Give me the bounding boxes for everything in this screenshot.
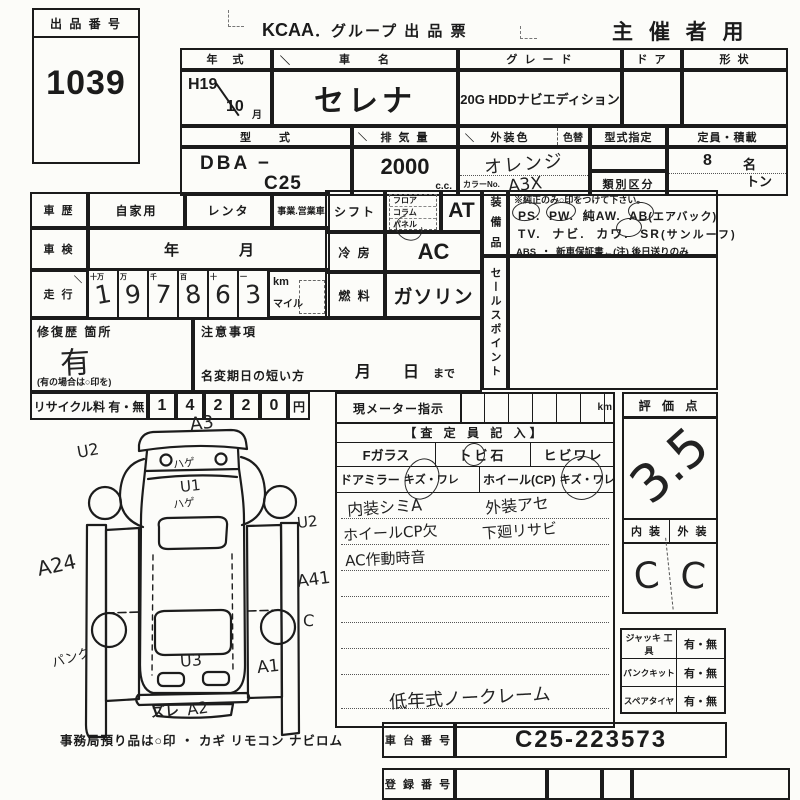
note-line <box>341 622 609 623</box>
registration-cell <box>602 768 632 800</box>
equipment-label: 装 備 品 <box>487 196 503 250</box>
repair-history-cell: 修復歴 箇所 有 (有の場合は○印を) <box>30 318 193 392</box>
model-cell: DBA − C25 <box>180 147 352 196</box>
fuel-label: 燃 料 <box>325 272 385 318</box>
color-no-label: カラーNo. <box>463 179 500 190</box>
door-mirror-label: ドアミラー <box>340 471 400 488</box>
chassis-number-label: 車 台 番 号 <box>382 722 455 758</box>
history-private: 自家用 <box>88 192 185 228</box>
meter-row: 現メーター指示 km <box>337 394 613 424</box>
meter-digit-box <box>484 394 509 422</box>
registration-cell <box>455 768 547 800</box>
registration-mark-right <box>520 26 537 39</box>
exterior-grade: C <box>668 538 719 613</box>
sales-point-label-cell: セールスポイント <box>482 256 508 390</box>
shift-options-cell: フロア コラム パネル <box>385 190 441 232</box>
shape-header: 形 状 <box>682 48 788 70</box>
color-header: ＼ 外装色 色替 <box>458 126 590 147</box>
damage-note-u2-top: U2 <box>76 439 101 462</box>
office-deposit-note: 事務局預り品は○印 ・ カギ リモコン ナビロム <box>60 730 343 749</box>
door-cell <box>622 70 682 126</box>
damage-note-zure: ズレ <box>150 700 179 722</box>
sales-point-box <box>508 256 718 390</box>
capacity-header: 定員・積載 <box>667 126 788 147</box>
transfer-deadline-date: 月 日 <box>355 358 419 382</box>
load-unit: トン <box>746 171 772 190</box>
history-business: 事業.営業車 <box>272 192 330 228</box>
year-value: H19 <box>188 76 217 94</box>
inspection-value: 年 月 <box>88 228 330 270</box>
jack-tools-label: ジャッキ 工具 <box>622 630 677 658</box>
digit-value: 8 <box>176 269 210 318</box>
shift-label: シフト <box>325 190 385 232</box>
tool-row: ジャッキ 工具 有・無 <box>622 630 724 659</box>
type-designation-header: 型式指定 <box>590 126 667 147</box>
wheel-label: ホイール(CP) <box>483 471 556 488</box>
damage-note-u2-right: U2 <box>296 512 318 532</box>
sheet-title: KCAA．グループ 出 品 票 <box>262 20 468 41</box>
meter-digit-box <box>532 394 557 422</box>
inspector-bottom-note: 低年式ノークレーム <box>388 680 551 714</box>
tools-table: ジャッキ 工具 有・無 パンクキット 有・無 スペアタイヤ 有・無 <box>620 628 726 714</box>
equipment-note: ※純正のみ○印をつけて下さい。 <box>510 192 716 206</box>
inspector-note-ac: AC作動時音 <box>345 546 426 571</box>
odometer-unit-cell: km マイル <box>268 270 330 318</box>
year-cell: H19 10 月 <box>180 70 272 126</box>
shift-option-floor: フロア <box>390 195 436 207</box>
damage-note-a3: A3 <box>189 412 215 435</box>
spare-tire-label: スペアタイヤ <box>622 687 677 714</box>
diagonal-mark: ＼ <box>465 131 474 144</box>
registration-mark-left <box>228 10 244 27</box>
odometer-digit-cell: 一 3 <box>238 270 268 318</box>
equipment-label-cell: 装 備 品 <box>482 190 508 256</box>
odometer-digit-cell: 十万 1 <box>88 270 118 318</box>
inspection-label: 車 検 <box>30 228 88 270</box>
registration-number-label: 登 録 番 号 <box>382 768 455 800</box>
door-header: ド ア <box>622 48 682 70</box>
history-rental: レンタ <box>185 192 272 228</box>
meter-digit-box <box>508 394 533 422</box>
inspector-note-wheel: ホイールCP欠 <box>343 520 439 546</box>
registration-cell <box>632 768 790 800</box>
organizer-label: 主 催 者 用 <box>612 16 749 46</box>
name-header-label: 車 名 <box>274 50 456 68</box>
digit-value: 6 <box>208 270 238 317</box>
puncture-kit-value: 有・無 <box>677 659 724 686</box>
meter-label: 現メーター指示 <box>337 394 462 422</box>
model-header: 型 式 <box>180 126 352 147</box>
note-line <box>341 570 609 571</box>
chassis-number-value: C25-223573 <box>455 722 727 758</box>
odometer-label-cell: ＼ 走 行 <box>30 270 88 318</box>
note-line <box>341 648 609 649</box>
odometer-digit-cell: 百 8 <box>178 270 208 318</box>
note-line <box>341 596 609 597</box>
equip-sr-paren: (サンルーフ) <box>661 229 737 241</box>
jack-tools-value: 有・無 <box>677 630 724 658</box>
equip-aw: 純AW. <box>583 209 621 223</box>
meter-digit-box <box>556 394 581 422</box>
note-line <box>341 544 609 545</box>
inspector-note-underbody: 下廻リサビ <box>481 517 557 543</box>
sales-point-label: セールスポイント <box>487 267 503 379</box>
damage-note-hage-mid: ハゲ <box>172 494 196 513</box>
diagonal-mark: ＼ <box>280 52 290 67</box>
damage-note-a2: A2 <box>186 698 210 720</box>
km-unit: km <box>273 276 289 288</box>
color-change-label: 色替 <box>557 128 588 145</box>
odometer-digit-cell: 万 9 <box>118 270 148 318</box>
inspector-note-exterior: 外装アセ <box>484 489 550 518</box>
type-designation-cell <box>590 147 667 171</box>
capacity-value: 8 <box>703 152 712 170</box>
puncture-kit-label: パンクキット <box>622 659 677 686</box>
transfer-deadline-label: 名変期日の短い方 <box>201 367 305 384</box>
name-header: ＼ 車 名 <box>272 48 458 70</box>
color-header-label: 外装色 <box>460 128 560 145</box>
ac-label: 冷 房 <box>325 232 385 272</box>
capacity-cell: 8 名 トン <box>667 147 788 196</box>
equipment-box: ※純正のみ○印をつけて下さい。 PS. PW. 純AW. AB(エアバック) T… <box>508 190 718 256</box>
displacement-value: 2000 <box>354 149 456 185</box>
grade-header: グ レ ー ド <box>458 48 622 70</box>
ac-value: AC <box>385 232 482 272</box>
mirror-wheel-row: ドアミラー キズ・ワレ ホイール(CP) キズ・ワレ <box>337 466 613 493</box>
damage-note-c: C <box>302 611 314 631</box>
history-label: 車 歴 <box>30 192 88 228</box>
lot-number-value: 1039 <box>34 38 138 128</box>
digit-value: 1 <box>85 269 121 319</box>
equipment-line-1: PS. PW. 純AW. AB(エアバック) <box>510 206 716 224</box>
shape-cell <box>682 70 788 126</box>
meter-unit: km <box>598 402 612 413</box>
registration-cell <box>547 768 602 800</box>
tool-row: パンクキット 有・無 <box>622 659 724 687</box>
model-prefix: DBA − <box>200 153 272 175</box>
interior-grade: C <box>620 538 673 614</box>
fuel-value: ガソリン <box>385 272 482 318</box>
score-value: 3.5 <box>605 401 735 531</box>
odometer-digit-cell: 十 6 <box>208 270 238 318</box>
mile-checkbox <box>299 280 325 314</box>
lot-number-box: 出 品 番 号 1039 <box>32 8 140 164</box>
spare-tire-value: 有・無 <box>677 687 724 714</box>
displacement-header: ＼ 排 気 量 <box>352 126 458 147</box>
color-cell: オレンジ カラーNo. A3X <box>458 147 590 196</box>
equip-navi: ナビ. <box>552 227 585 241</box>
lot-number-label: 出 品 番 号 <box>34 10 138 38</box>
digit-value: 3 <box>237 270 268 318</box>
damage-note-u3: U3 <box>179 650 202 670</box>
grade-value: 20G HDDナビエディション <box>458 70 622 126</box>
inspector-note-interior: 内装シミA <box>346 491 422 520</box>
equip-ab-paren: (エアバック) <box>648 211 717 223</box>
equipment-line-2: TV. ナビ. カワ. SR(サンルーフ) <box>510 224 716 242</box>
auction-sheet: 出 品 番 号 1039 KCAA．グループ 出 品 票 主 催 者 用 年 式… <box>0 0 800 800</box>
sheet-title-text: ．グループ 出 品 票 <box>314 23 468 40</box>
equip-sr: SR <box>640 227 661 241</box>
digit-value: 7 <box>147 270 178 318</box>
transfer-deadline-made: まで <box>433 365 455 381</box>
shift-value: AT <box>441 190 482 232</box>
tool-row: スペアタイヤ 有・無 <box>622 687 724 714</box>
month-value: 10 <box>226 98 244 116</box>
score-box: 評 価 点 3.5 内 装 外 装 C C <box>622 392 718 614</box>
displacement-header-label: 排 気 量 <box>354 128 456 145</box>
year-header: 年 式 <box>180 48 272 70</box>
note-line <box>341 674 609 675</box>
damage-note-hage-top: ハゲ <box>172 454 196 473</box>
damage-note-a1: A1 <box>256 656 280 678</box>
month-unit: 月 <box>252 106 262 121</box>
diagonal-mark: ＼ <box>74 274 82 285</box>
brand-logo: KCAA <box>262 20 314 40</box>
caution-label: 注意事項 <box>201 323 257 340</box>
car-name-value: セレナ <box>272 70 458 126</box>
repair-history-note: (有の場合は○印を) <box>37 375 111 388</box>
inspector-header: 【査 定 員 記 入】 <box>337 422 613 443</box>
car-damage-diagram: A3 U2 ハゲ U1 ハゲ U2 A24 A41 C パンク U3 A1 ズレ… <box>35 415 335 745</box>
equip-tv: TV. <box>518 227 542 241</box>
odometer-digit-cell: 千 7 <box>148 270 178 318</box>
caution-cell: 注意事項 名変期日の短い方 月 日 まで <box>193 318 482 392</box>
inspector-box: 現メーター指示 km 【査 定 員 記 入】 Fガラス トビ石 ヒビワレ ドアミ… <box>335 392 615 728</box>
diagonal-mark: ＼ <box>358 130 367 143</box>
digit-value: 9 <box>117 270 150 319</box>
displacement-cell: 2000 c.c. <box>352 147 458 196</box>
meter-digit-box <box>460 394 485 422</box>
interior-exterior-values: C C <box>624 540 716 612</box>
